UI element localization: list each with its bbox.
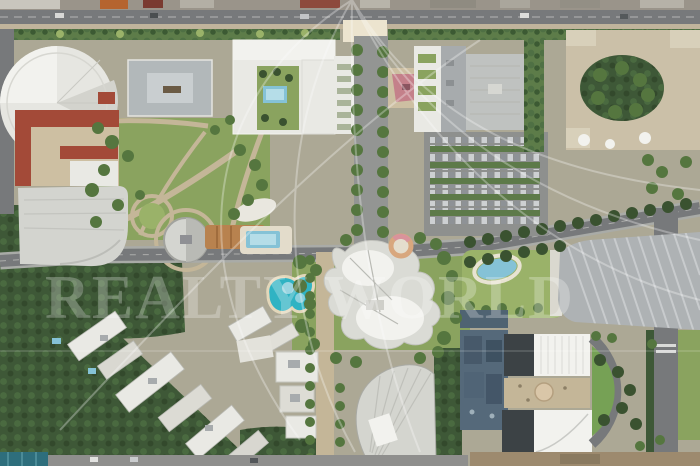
watermark-text: REALTY WORLD: [45, 264, 575, 332]
narrow-white-building: [334, 56, 354, 134]
ridged-roof-mall: [558, 231, 700, 332]
round-pavilion: [164, 218, 208, 262]
aerial-render: REALTY WORLD: [0, 0, 700, 466]
office-building: [466, 54, 524, 130]
museum-north-building: [504, 334, 590, 376]
gray-pavilion-building: [128, 60, 212, 116]
museum-south-building: [502, 410, 592, 458]
museum-building: [233, 40, 335, 134]
theater-building: [18, 186, 128, 266]
ring-pavilion: [391, 236, 411, 256]
hotel-courtyard-building: [566, 30, 700, 150]
aerial-render-canvas: REALTY WORLD: [0, 0, 700, 466]
green-walkway: [524, 40, 544, 152]
plaza-courtyard: [504, 378, 590, 408]
tree-lined-street: [351, 36, 389, 252]
green-roof-building: [414, 46, 466, 132]
